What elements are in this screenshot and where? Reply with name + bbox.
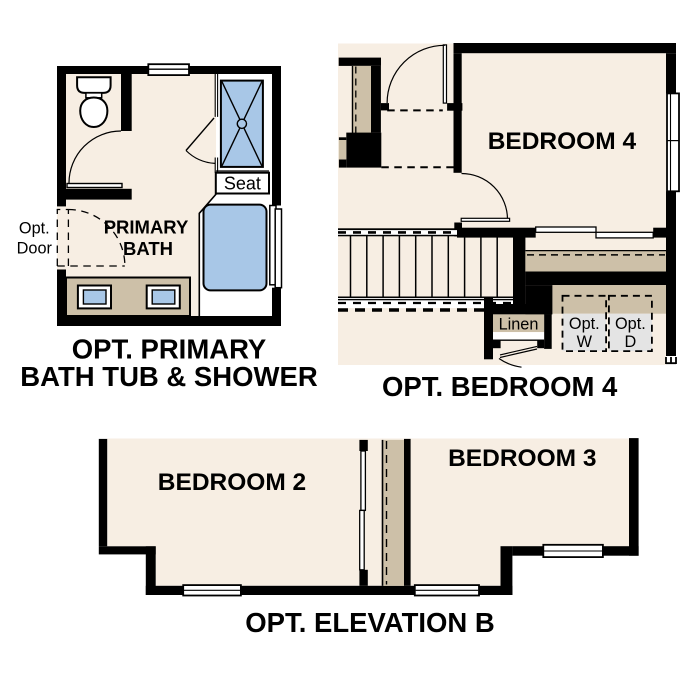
svg-text:OPT. BEDROOM 4: OPT. BEDROOM 4 bbox=[382, 371, 618, 402]
svg-text:BEDROOM 4: BEDROOM 4 bbox=[488, 128, 637, 155]
svg-text:D: D bbox=[625, 333, 637, 351]
svg-text:BEDROOM 3: BEDROOM 3 bbox=[448, 445, 596, 472]
svg-text:PRIMARY: PRIMARY bbox=[104, 217, 189, 238]
svg-text:OPT. ELEVATION B: OPT. ELEVATION B bbox=[245, 607, 495, 638]
svg-text:BATH: BATH bbox=[123, 238, 173, 259]
svg-text:Linen: Linen bbox=[499, 316, 539, 334]
svg-text:Opt.: Opt. bbox=[615, 315, 646, 333]
svg-text:Opt.: Opt. bbox=[19, 220, 50, 238]
svg-text:Door: Door bbox=[17, 240, 53, 258]
svg-text:BEDROOM 2: BEDROOM 2 bbox=[158, 469, 306, 496]
svg-text:W: W bbox=[577, 333, 593, 351]
svg-text:Opt.: Opt. bbox=[569, 315, 600, 333]
svg-text:Seat: Seat bbox=[224, 174, 261, 194]
svg-text:OPT. PRIMARY: OPT. PRIMARY bbox=[72, 334, 267, 365]
svg-text:BATH TUB & SHOWER: BATH TUB & SHOWER bbox=[20, 361, 318, 392]
